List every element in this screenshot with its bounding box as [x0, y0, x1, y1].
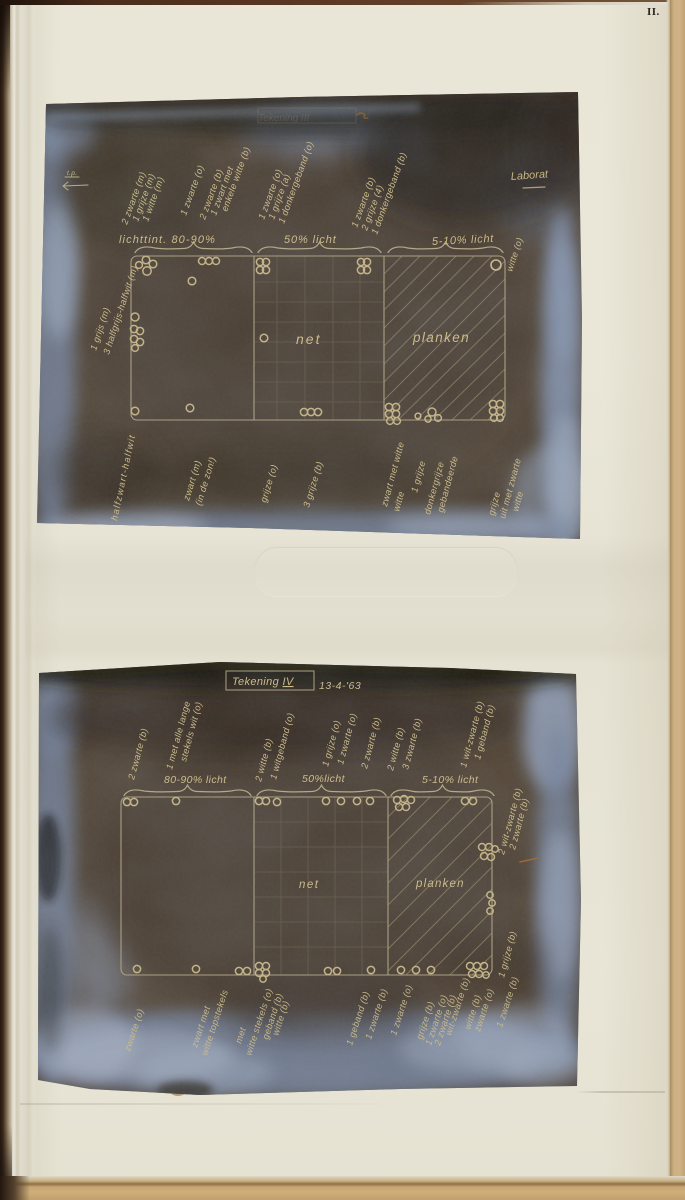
svg-text:Tekening III: Tekening III [258, 113, 310, 124]
svg-text:80-90% licht: 80-90% licht [164, 774, 227, 786]
svg-text:planken: planken [412, 330, 470, 345]
svg-text:lichttint. 80-90%: lichttint. 80-90% [119, 234, 216, 246]
svg-text:Tekening IV: Tekening IV [232, 676, 295, 688]
svg-text:5-10% licht: 5-10% licht [422, 774, 479, 786]
svg-text:net: net [296, 331, 321, 347]
svg-text:50% licht: 50% licht [284, 234, 337, 246]
svg-text:t.p.: t.p. [67, 170, 77, 177]
svg-text:50%licht: 50%licht [302, 773, 346, 785]
svg-text:planken: planken [415, 878, 465, 890]
svg-text:net: net [299, 879, 320, 891]
svg-text:13-4-'63: 13-4-'63 [319, 680, 361, 692]
